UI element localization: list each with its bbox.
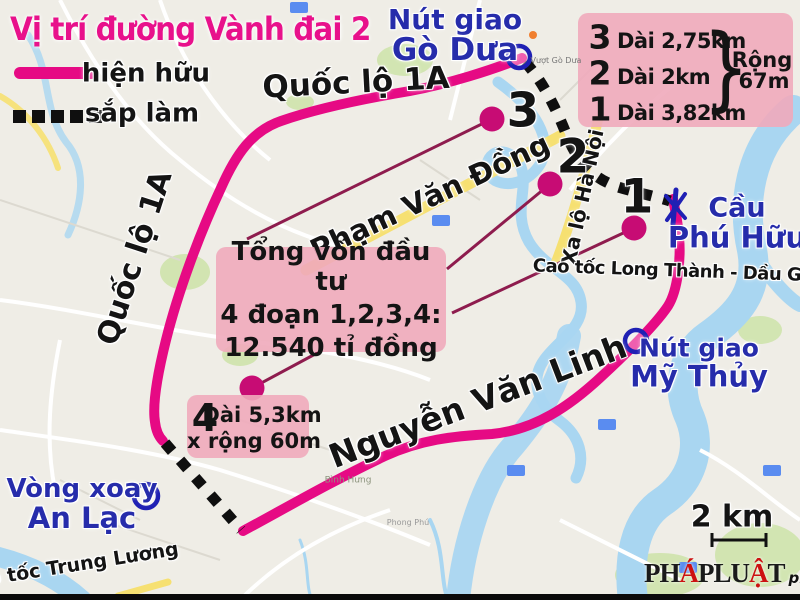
segment-width-label-2: 67m <box>738 70 789 92</box>
segment4-box: 4 Dài 5,3km x rộng 60m <box>187 395 309 458</box>
segment-info-num-2: 2 <box>589 57 612 92</box>
segment-width-label-1: Rộng <box>732 49 793 71</box>
segment-number-1: 1 <box>621 172 654 221</box>
segment4-line-1: Dài 5,3km <box>202 404 321 426</box>
bottom-bar <box>0 594 800 600</box>
segment-info-num-1: 1 <box>589 93 612 128</box>
poi-dot <box>529 31 537 39</box>
segment-number-2: 2 <box>557 132 590 181</box>
segment-info-len-2: Dài 2km <box>617 66 710 88</box>
junction-label-go-dua: Nút giao Gò Dưa <box>388 5 522 67</box>
map-label-vuot-go-dua: Vượt Gò Dưa <box>531 57 582 65</box>
junction-label-phu-huu: Cầu Phú Hữu <box>668 195 800 254</box>
legend-planned-label: sắp làm <box>85 100 199 127</box>
logo-suffix: plo.vn <box>789 569 800 587</box>
segment4-line-2: x rộng 60m <box>187 430 321 452</box>
scale-label: 2 km <box>691 501 774 533</box>
segment-info-num-3: 3 <box>589 21 612 56</box>
logo: PHÁPLUẬT plo.vn <box>644 560 800 587</box>
junction-label-my-thuy: Nút giao Mỹ Thủy <box>630 336 768 393</box>
junction-label-an-lac: Vòng xoay An Lạc <box>6 476 157 534</box>
investment-line-2: 4 đoạn 1,2,3,4: <box>216 300 446 330</box>
investment-line-3: 12.540 tỉ đồng <box>216 333 446 363</box>
segment-number-3: 3 <box>507 86 540 135</box>
map-label-phong-phu: Phong Phú <box>387 519 429 527</box>
legend-existing-label: hiện hữu <box>82 60 210 87</box>
investment-box: Tổng vốn đầu tư 4 đoạn 1,2,3,4: 12.540 t… <box>216 247 446 352</box>
segment-info-box: 3 Dài 2,75km 2 Dài 2km 1 Dài 3,82km } Rộ… <box>578 13 793 127</box>
investment-line-1: Tổng vốn đầu tư <box>216 237 446 297</box>
map-label-binh-hung: Bình Hưng <box>325 476 372 485</box>
logo-wordmark: PHÁPLUẬT <box>644 560 785 587</box>
page-title: Vị trí đường Vành đai 2 <box>10 10 370 48</box>
map-infographic: Vị trí đường Vành đai 2 hiện hữu sắp làm… <box>0 0 800 600</box>
